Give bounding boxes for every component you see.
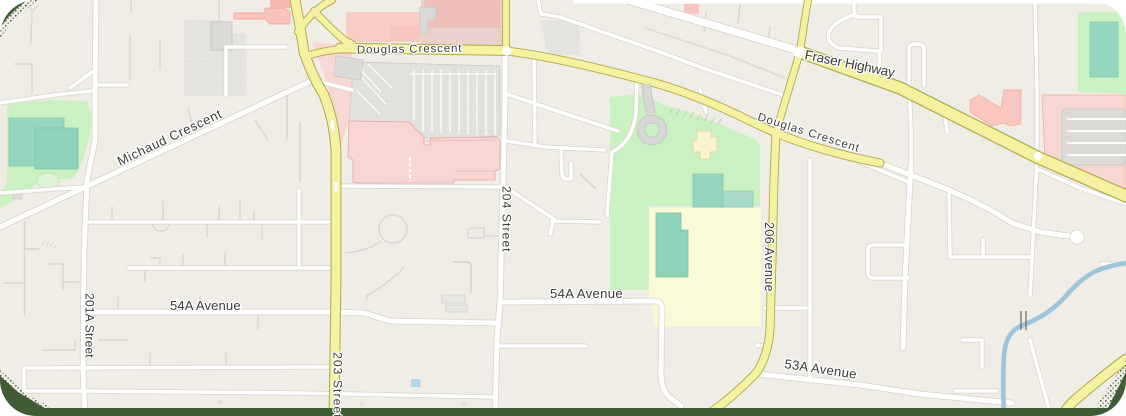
svg-text:54A Avenue: 54A Avenue bbox=[550, 286, 623, 301]
svg-text:54A Avenue: 54A Avenue bbox=[170, 298, 241, 313]
svg-text:201A Street: 201A Street bbox=[83, 293, 97, 358]
svg-text:206 Avenue: 206 Avenue bbox=[762, 222, 776, 292]
svg-text:Douglas Crescent: Douglas Crescent bbox=[357, 43, 463, 57]
svg-text:204 Street: 204 Street bbox=[500, 186, 514, 252]
svg-text:203 Street: 203 Street bbox=[331, 352, 345, 416]
